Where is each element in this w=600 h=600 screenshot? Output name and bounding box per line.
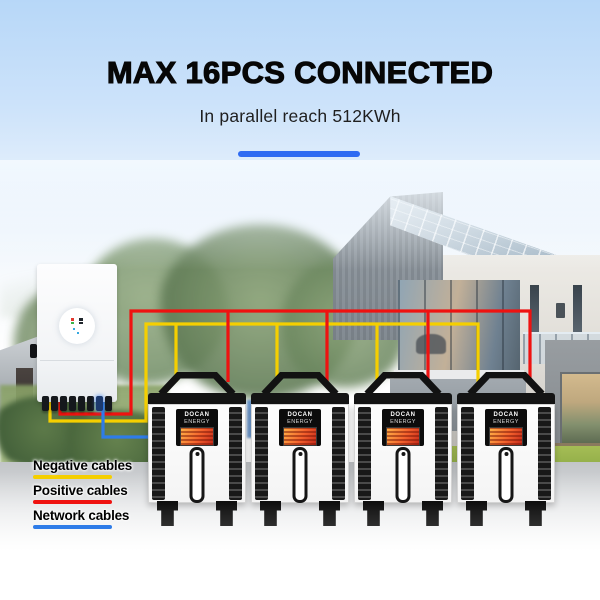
- legend-color-bar: [33, 525, 112, 529]
- display-icon: [77, 332, 79, 334]
- accent-divider-bar: [238, 151, 360, 157]
- legend-item-network: Network cables: [33, 508, 132, 529]
- battery-side-vent-left: [152, 407, 165, 500]
- solar-inverter: [37, 264, 117, 402]
- inverter-port: [105, 396, 112, 411]
- battery-side-vent-right: [538, 407, 551, 500]
- battery-body: DOCAN ENERGY: [354, 404, 452, 503]
- inverter-port: [51, 396, 58, 411]
- marketing-banner: MAX 16PCS CONNECTED In parallel reach 51…: [0, 0, 600, 600]
- inverter-port: [42, 396, 49, 411]
- battery-lcd-display: [180, 427, 214, 446]
- battery-wheel: [260, 501, 281, 526]
- inverter-port: [87, 396, 94, 411]
- battery-side-vent-left: [358, 407, 371, 500]
- battery-screen: DOCAN ENERGY: [485, 409, 527, 446]
- inverter-panel-seam: [40, 360, 114, 361]
- display-icon: [73, 328, 75, 330]
- headline: MAX 16PCS CONNECTED: [0, 0, 600, 90]
- brand-logo-line1: DOCAN: [176, 409, 218, 419]
- inverter-ports: [42, 396, 112, 411]
- battery-body: DOCAN ENERGY: [457, 404, 555, 503]
- legend-label: Negative cables: [33, 458, 132, 473]
- battery-unit-4: DOCAN ENERGY: [457, 372, 555, 526]
- battery-front-handle-slot: [499, 447, 514, 503]
- battery-unit-3: DOCAN ENERGY: [354, 372, 452, 526]
- display-icon: [71, 318, 74, 321]
- inverter-antenna: [30, 344, 37, 358]
- brand-logo-line2: ENERGY: [485, 419, 527, 425]
- battery-wheel: [319, 501, 340, 526]
- brand-logo-line1: DOCAN: [485, 409, 527, 419]
- battery-wheel: [525, 501, 546, 526]
- battery-top-cap: [457, 393, 555, 404]
- battery-screen: DOCAN ENERGY: [279, 409, 321, 446]
- battery-side-vent-right: [435, 407, 448, 500]
- battery-unit-1: DOCAN ENERGY: [148, 372, 246, 526]
- battery-handle: [457, 372, 555, 395]
- inverter-port: [60, 396, 67, 411]
- battery-lcd-display: [489, 427, 523, 446]
- battery-handle: [354, 372, 452, 395]
- battery-handle: [148, 372, 246, 395]
- brand-logo-line2: ENERGY: [176, 419, 218, 425]
- battery-side-vent-left: [255, 407, 268, 500]
- header: MAX 16PCS CONNECTED In parallel reach 51…: [0, 0, 600, 127]
- battery-lcd-display: [283, 427, 317, 446]
- brand-logo-line1: DOCAN: [382, 409, 424, 419]
- battery-top-cap: [354, 393, 452, 404]
- legend-item-positive: Positive cables: [33, 483, 132, 504]
- legend-label: Positive cables: [33, 483, 132, 498]
- battery-body: DOCAN ENERGY: [251, 404, 349, 503]
- legend-color-bar: [33, 500, 112, 504]
- battery-front-handle-slot: [396, 447, 411, 503]
- battery-wheel: [157, 501, 178, 526]
- brand-logo-line1: DOCAN: [279, 409, 321, 419]
- display-icon: [79, 322, 83, 324]
- battery-front-handle-slot: [190, 447, 205, 503]
- brand-logo-line2: ENERGY: [279, 419, 321, 425]
- battery-front-handle-slot: [293, 447, 308, 503]
- brand-logo-line2: ENERGY: [382, 419, 424, 425]
- battery-body: DOCAN ENERGY: [148, 404, 246, 503]
- battery-handle: [251, 372, 349, 395]
- inverter-port: [69, 396, 76, 411]
- battery-screen: DOCAN ENERGY: [382, 409, 424, 446]
- battery-lcd-display: [386, 427, 420, 446]
- battery-wheel: [363, 501, 384, 526]
- battery-wheel: [422, 501, 443, 526]
- battery-top-cap: [148, 393, 246, 404]
- inverter-network-port: [96, 396, 103, 411]
- display-icon: [79, 318, 83, 321]
- legend-color-bar: [33, 475, 112, 479]
- battery-side-vent-right: [332, 407, 345, 500]
- battery-side-vent-right: [229, 407, 242, 500]
- display-icon: [71, 322, 74, 324]
- battery-top-cap: [251, 393, 349, 404]
- legend-item-negative: Negative cables: [33, 458, 132, 479]
- battery-wheel: [216, 501, 237, 526]
- cable-legend: Negative cables Positive cables Network …: [33, 458, 132, 533]
- inverter-display: [59, 308, 95, 344]
- legend-label: Network cables: [33, 508, 132, 523]
- inverter-port: [78, 396, 85, 411]
- battery-screen: DOCAN ENERGY: [176, 409, 218, 446]
- subheadline: In parallel reach 512KWh: [0, 90, 600, 127]
- battery-wheel: [466, 501, 487, 526]
- battery-side-vent-left: [461, 407, 474, 500]
- battery-unit-2: DOCAN ENERGY: [251, 372, 349, 526]
